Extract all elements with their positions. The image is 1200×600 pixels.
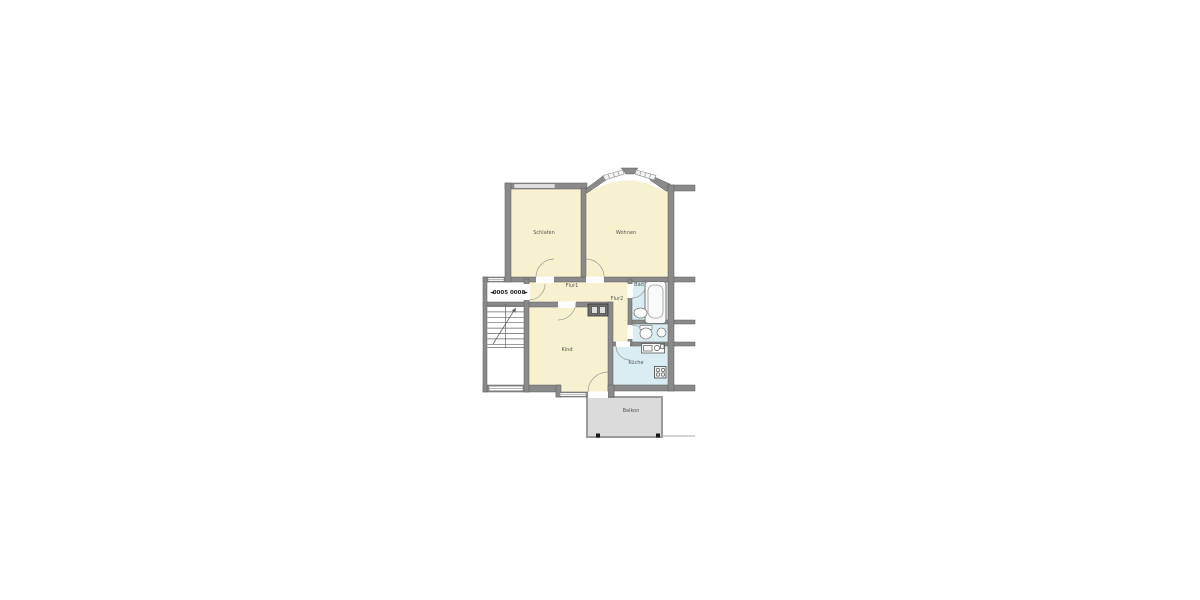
label-kind: Kind (561, 347, 572, 353)
balcony-post-icon (656, 434, 660, 438)
label-schlafen: Schlafen (533, 230, 555, 236)
wall (668, 185, 674, 391)
door-opening-wohnen (586, 277, 604, 284)
door-opening-kind (558, 302, 576, 309)
balcony (587, 397, 695, 438)
wall (608, 302, 613, 391)
door-opening-balkon (588, 392, 608, 399)
balcony-post-icon (596, 434, 600, 438)
shaft-cell (592, 307, 598, 314)
kitchen-sink-tap (661, 345, 665, 349)
toilet-icon (640, 328, 652, 339)
stove-icon (655, 367, 667, 379)
balcony-deck (587, 397, 662, 437)
floor-plan-drawing: Schlafen Wohnen Flur1 Bad Flur2 Kind Küc… (0, 0, 1200, 600)
wall (505, 183, 511, 282)
door-opening-schlafen (536, 277, 554, 284)
washbasin-icon (657, 328, 666, 337)
wall (581, 188, 586, 277)
floor-plan-page: Schlafen Wohnen Flur1 Bad Flur2 Kind Küc… (0, 0, 1200, 600)
label-flur1: Flur1 (566, 283, 579, 289)
sink-icon (634, 308, 647, 318)
apartment-label: ◄ 0005 0008 ► (490, 290, 529, 296)
label-wohnen: Wohnen (616, 230, 636, 236)
kitchen-sink-basin (644, 346, 653, 352)
label-flur2: Flur2 (611, 296, 624, 302)
label-bad: Bad (634, 282, 644, 288)
label-kueche: Küche (628, 360, 643, 366)
door-opening-bad (628, 284, 634, 298)
door-opening-wc (628, 325, 634, 339)
stairwell-interior (487, 281, 525, 387)
apartment-number: 0005 0008 (493, 290, 526, 296)
shaft-cell (600, 307, 606, 314)
wall (483, 277, 487, 392)
wall (610, 385, 695, 391)
door-opening-kueche (616, 342, 630, 348)
wall (608, 385, 614, 397)
label-balkon: Balkon (623, 408, 640, 414)
